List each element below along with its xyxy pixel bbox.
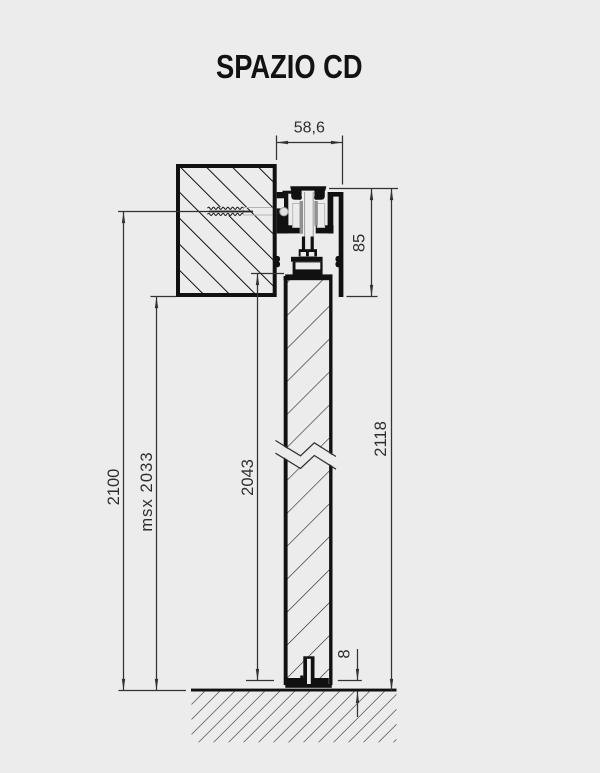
svg-text:2043: 2043 <box>239 459 257 496</box>
svg-text:58,6: 58,6 <box>294 120 325 137</box>
svg-text:SPAZIO CD: SPAZIO CD <box>216 48 363 85</box>
svg-text:8: 8 <box>336 649 354 658</box>
svg-text:msx 2033: msx 2033 <box>138 451 156 531</box>
svg-text:85: 85 <box>351 234 369 252</box>
svg-text:2100: 2100 <box>105 469 123 506</box>
svg-text:2118: 2118 <box>372 421 390 456</box>
